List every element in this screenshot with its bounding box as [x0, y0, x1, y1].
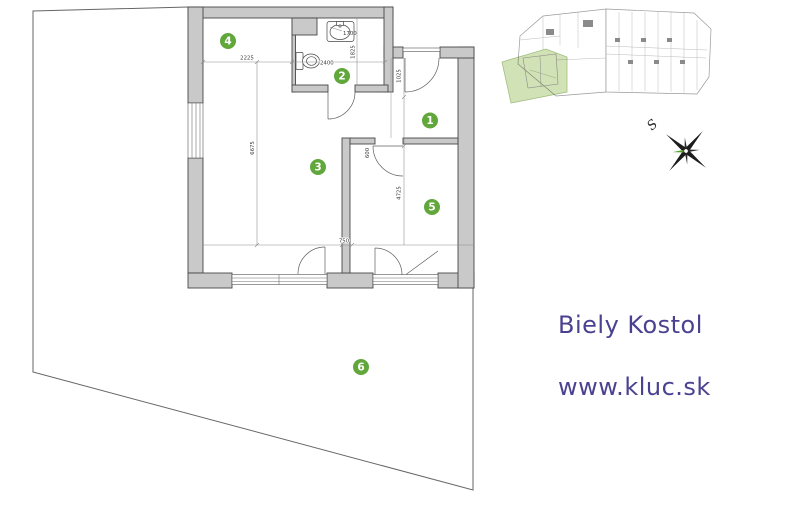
- room-badge-5: 5: [424, 199, 440, 215]
- dimension-label: 600: [365, 147, 371, 158]
- window-bottom-left: [232, 275, 327, 285]
- room-badge-3: 3: [310, 159, 326, 175]
- site-plan: [502, 9, 711, 103]
- installation-shaft: [292, 18, 317, 35]
- website-link[interactable]: www.kluc.sk: [558, 373, 711, 401]
- dimension-label: 1025: [397, 69, 403, 83]
- room-number: 6: [357, 362, 364, 374]
- bedroom-door-swing: [373, 146, 403, 176]
- dimension-label: 750: [339, 239, 350, 245]
- toilet-icon: [296, 53, 320, 70]
- compass-north-label: S: [644, 117, 661, 134]
- bathroom-door-swing: [328, 92, 355, 119]
- room-number: 4: [224, 36, 231, 48]
- entrance-door-swing: [405, 58, 439, 92]
- room-number: 3: [314, 162, 321, 174]
- floor-plan-canvas: 2225 2400 1700 6675 1825 1025 4725 750 6…: [0, 0, 800, 512]
- dimension-label: 1700: [343, 31, 357, 37]
- dimension-label: 1825: [351, 45, 357, 59]
- entrance-door-slab: [403, 48, 440, 52]
- terrace-door-swing-left: [298, 247, 325, 274]
- room-number: 5: [428, 202, 435, 214]
- room-badge-2: 2: [334, 68, 350, 84]
- room-badge-1: 1: [422, 113, 438, 129]
- room-badge-4: 4: [220, 33, 236, 49]
- plot-boundary: [33, 7, 473, 490]
- window-left: [188, 103, 203, 158]
- dimension-label: 2225: [240, 56, 254, 62]
- location-title: Biely Kostol: [558, 311, 703, 339]
- floor-plan-page: 2225 2400 1700 6675 1825 1025 4725 750 6…: [0, 0, 800, 512]
- room-number: 2: [338, 71, 345, 83]
- room-badges: 1 2 3 4 5 6: [220, 33, 440, 375]
- dimension-labels: 2225 2400 1700 6675 1825 1025 4725 750 6…: [240, 31, 402, 245]
- dimension-label: 4725: [397, 186, 403, 200]
- window-bottom-right: [373, 275, 438, 285]
- room-number: 1: [426, 115, 433, 127]
- dimension-label: 6675: [250, 141, 256, 155]
- terrace-door-swing-right: [375, 248, 438, 275]
- room-badge-6: 6: [353, 359, 369, 375]
- compass-rose: S: [644, 114, 722, 187]
- dimension-label: 2400: [320, 61, 334, 67]
